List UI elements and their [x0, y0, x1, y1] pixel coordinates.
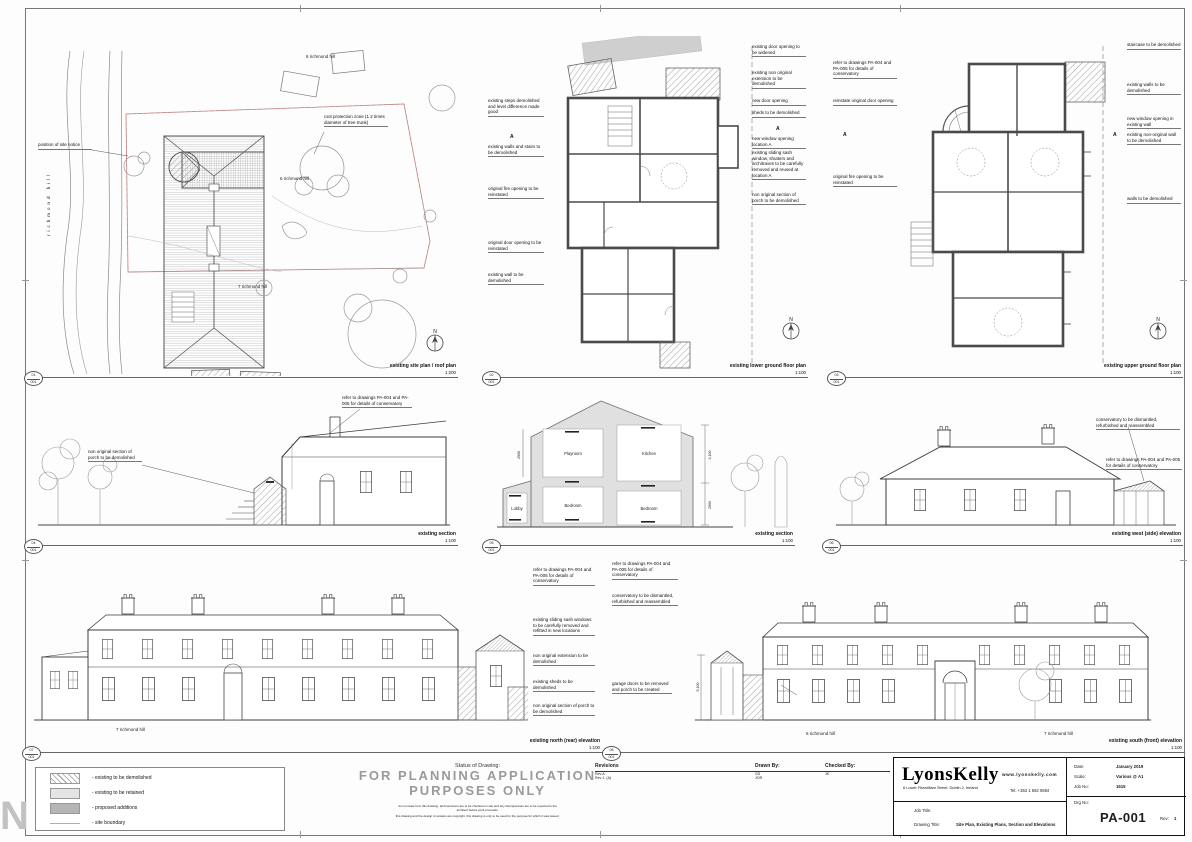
panel-title: existing lower ground floor plan 1:100	[608, 363, 806, 376]
note: refer to drawings PA-004 and PA-005 for …	[1106, 457, 1182, 470]
svg-text:N: N	[433, 329, 437, 335]
drawing-ref-bubble: 08001	[602, 746, 621, 761]
legend: - existing to be demolished - existing t…	[35, 767, 285, 831]
note: refer to drawings PA-004 and PA-005 for …	[612, 561, 678, 580]
svg-text:Bedroom: Bedroom	[565, 503, 583, 508]
north-elevation-drawing	[28, 555, 528, 747]
status-block: Status of Drawing: FOR PLANNING APPLICAT…	[330, 763, 625, 819]
checked-by-value: JK	[825, 772, 890, 776]
drawing-number: PA-001	[1100, 810, 1146, 825]
svg-text:Playroom: Playroom	[564, 451, 582, 456]
label-7-richmond-hill: 7 richmond hill	[1044, 731, 1073, 736]
section-a-drawing	[30, 393, 460, 541]
note: existing non-original wall to be demolis…	[1127, 132, 1181, 145]
drawing-ref-bubble: 07001	[22, 746, 41, 761]
panel-rule	[30, 545, 458, 546]
drawing-ref-bubble: 02001	[482, 371, 501, 386]
drawn-by-label: Drawn By:	[755, 763, 825, 772]
note: existing sheds to be demolished	[533, 679, 595, 692]
date-label: Date:	[1074, 764, 1084, 769]
site-plan-drawing	[32, 36, 462, 376]
legend-swatch-proposed	[50, 803, 80, 814]
legend-swatch-retained	[50, 788, 80, 799]
panel-west-elevation: conservatory to be dismantled, refurbish…	[828, 393, 1188, 545]
note: new window opening in existing wall	[1127, 116, 1181, 129]
label-7-richmond-hill: 7 richmond hill	[238, 284, 267, 289]
panel-rule	[30, 377, 458, 378]
panel-title: existing site plan / roof plan 1:200	[258, 363, 456, 376]
note: refer to drawings PA-004 and PA-005 for …	[342, 395, 412, 408]
drawn-by-value: JOR	[755, 776, 825, 780]
label-6-richmond-hill: 6 richmond hill	[806, 731, 835, 736]
note: existing steps demolished and level diff…	[488, 98, 544, 117]
drawing-title-value: Site Plan, Existing Plans, Section and E…	[956, 822, 1064, 827]
firm-website: www.lyonskelly.com	[1002, 772, 1057, 777]
svg-text:5,100: 5,100	[696, 683, 700, 692]
border-tick	[600, 5, 601, 12]
svg-text:N: N	[789, 317, 793, 323]
note: existing sliding sash windows to be care…	[533, 617, 595, 636]
panel-rule	[833, 377, 1183, 378]
section-b-drawing: Playroom Kitchen Lobby Bedroom Bedroom 2…	[493, 393, 793, 541]
legend-swatch-demolished	[50, 773, 80, 784]
legend-item-proposed: - proposed additions	[50, 802, 137, 814]
legend-item-retained: - existing to be retained	[50, 787, 144, 799]
firm-phone: Tel: +353 1 662 0884	[1010, 788, 1049, 793]
note: reinstate original door opening	[833, 98, 897, 106]
note: refer to drawings PA-004 and PA-005 for …	[833, 60, 897, 79]
note: non original section of porch to be demo…	[752, 192, 806, 205]
date-value: January 2019	[1116, 764, 1143, 769]
location-marker-a: A	[843, 132, 847, 138]
disclaimer: do not scale from this drawing. all dime…	[398, 805, 558, 813]
south-elevation-drawing: 5,100	[693, 555, 1158, 747]
svg-text:Lobby: Lobby	[511, 506, 523, 511]
location-marker-a: A	[1113, 132, 1117, 138]
drawing-title-label: Drawing Title:	[914, 822, 940, 827]
firm-logo: LyonsKelly	[902, 765, 999, 784]
note: existing wall to be demolished	[488, 272, 544, 285]
scale-label: Scale:	[1074, 774, 1086, 779]
status-line1: FOR PLANNING APPLICATION	[330, 769, 625, 784]
title-block-divider	[1066, 796, 1186, 797]
note-site-notice: position of site notice	[38, 142, 92, 150]
note: existing walls to be demolished	[1127, 82, 1181, 95]
legend-swatch-site-boundary	[50, 823, 80, 824]
revision-row: Rev 1. (A)	[595, 776, 755, 780]
note: new window opening location A	[752, 136, 806, 149]
note: original fire opening to be reinstated	[833, 174, 897, 187]
panel-upper-ground-plan: refer to drawings PA-004 and PA-005 for …	[833, 36, 1185, 382]
label-6-richmond-hill: 6 richmond hill	[280, 176, 309, 181]
panel-section-b: Playroom Kitchen Lobby Bedroom Bedroom 2…	[493, 393, 793, 545]
note: original fire opening to be reinstated	[488, 186, 544, 199]
panel-title: existing section 1:100	[595, 531, 793, 544]
svg-text:Kitchen: Kitchen	[642, 451, 657, 456]
panel-rule	[608, 752, 1185, 753]
border-tick	[300, 831, 301, 838]
svg-text:2900: 2900	[517, 451, 521, 459]
border-tick	[900, 5, 901, 12]
drawing-ref-bubble: 01001	[24, 371, 43, 386]
note: sheds to be demolished	[752, 110, 806, 118]
north-arrow-icon: N	[424, 328, 446, 354]
note: original door opening to be reinstated	[488, 240, 544, 253]
location-marker-a: A	[510, 134, 514, 140]
panel-rule	[488, 545, 795, 546]
revisions-title: Revisions	[595, 763, 755, 772]
scale-value: Various @ A1	[1116, 774, 1143, 779]
firm-address: 6 Lower Fitzwilliam Street, Dublin 2, Ir…	[903, 785, 978, 790]
panel-section-a: refer to drawings PA-004 and PA-005 for …	[30, 393, 460, 545]
title-block-divider	[894, 801, 1066, 802]
note: existing door opening to be widened	[752, 44, 806, 57]
revisions-block: Revisions Rev A. Rev 1. (A) Drawn By: GS…	[595, 763, 890, 780]
drawing-ref-bubble: 03001	[827, 371, 846, 386]
legend-item-boundary: - site boundary	[50, 817, 125, 829]
note: garage doors to be removed and porch to …	[612, 681, 672, 694]
corner-watermark: N	[0, 796, 29, 836]
status-line2: PURPOSES ONLY	[330, 784, 625, 799]
svg-text:3,100: 3,100	[708, 451, 712, 460]
panel-title: existing section 1:100	[258, 531, 456, 544]
title-block: LyonsKelly 6 Lower Fitzwilliam Street, D…	[893, 757, 1185, 836]
label-7-richmond-hill: 7 richmond hill	[116, 727, 145, 732]
drawing-ref-bubble: 04001	[24, 539, 43, 554]
note-root-protection: root protection zone (1.2 times diameter…	[324, 114, 388, 127]
note: conservatory to be dismantled, refurbish…	[1096, 417, 1180, 430]
upper-plan-drawing	[905, 36, 1123, 376]
note: new door opening	[752, 98, 806, 106]
note: non original section of porch to be demo…	[88, 449, 142, 462]
border-tick	[300, 5, 301, 12]
panel-site-plan: position of site notice root protection …	[32, 36, 462, 382]
panel-south-elevation: 5,100 refer to drawings PA-004 and PA-00…	[608, 555, 1185, 755]
note: refer to drawings PA-004 and PA-005 for …	[533, 567, 595, 586]
job-no-label: Job No:	[1074, 784, 1089, 789]
note: walls to be demolished	[1127, 196, 1181, 204]
job-no-value: 1615	[1116, 784, 1126, 789]
drg-no-label: Drg No:	[1074, 800, 1089, 805]
label-6-richmond-hill-top: 6 richmond hill	[306, 54, 335, 59]
note: non original extension to be demolished	[533, 653, 595, 666]
note: conservatory to be dismantled, refurbish…	[612, 593, 678, 606]
drawing-ref-bubble: 06001	[822, 539, 841, 554]
legend-item-demolished: - existing to be demolished	[50, 772, 151, 784]
copyright-note: this drawing and the design it contains …	[393, 815, 563, 819]
panel-title: existing south (front) elevation 1:100	[912, 738, 1182, 751]
panel-lower-ground-plan: existing steps demolished and level diff…	[488, 36, 810, 382]
panel-title: existing west (side) elevation 1:100	[983, 531, 1181, 544]
job-title-label: Job Title:	[914, 808, 931, 813]
location-marker-a: A	[776, 126, 780, 132]
note: staircase to be demolished	[1127, 42, 1181, 50]
panel-north-elevation: 7 richmond hill refer to drawings PA-004…	[28, 555, 603, 755]
border-tick	[600, 831, 601, 838]
drawing-ref-bubble: 05001	[482, 539, 501, 554]
panel-title: existing north (rear) elevation 1:100	[330, 738, 600, 751]
svg-text:N: N	[1156, 317, 1160, 323]
panel-title: existing upper ground floor plan 1:100	[983, 363, 1181, 376]
note: non original section of porch to be demo…	[533, 703, 595, 716]
north-arrow-icon: N	[1147, 316, 1169, 342]
panel-rule	[28, 752, 603, 753]
panel-rule	[488, 377, 808, 378]
panel-rule	[828, 545, 1183, 546]
svg-text:Bedroom: Bedroom	[641, 506, 659, 511]
drawing-sheet: position of site notice root protection …	[0, 0, 1192, 842]
checked-by-label: Checked By:	[825, 763, 890, 772]
border-tick	[22, 280, 29, 281]
note: existing walls and stairs to be demolish…	[488, 144, 544, 157]
note: existing sliding sash window, shutters a…	[752, 150, 806, 180]
north-arrow-icon: N	[780, 316, 802, 342]
label-richmond-hill-road: richmond hill	[46, 172, 51, 236]
rev-value: 1	[1174, 816, 1176, 821]
svg-text:2900: 2900	[708, 501, 712, 509]
rev-label: Rev:	[1160, 816, 1169, 821]
note: existing non original extension to be de…	[752, 70, 806, 89]
lower-plan-drawing	[548, 36, 753, 376]
